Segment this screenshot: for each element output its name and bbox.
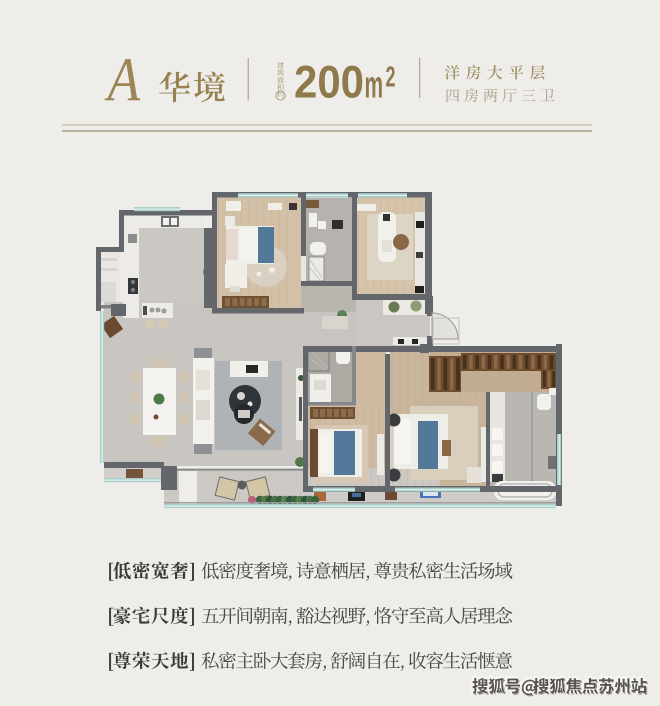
svg-text:m: m (365, 64, 384, 106)
svg-text:200: 200 (294, 57, 364, 108)
svg-text:A: A (104, 45, 141, 115)
svg-text:2: 2 (386, 61, 396, 93)
